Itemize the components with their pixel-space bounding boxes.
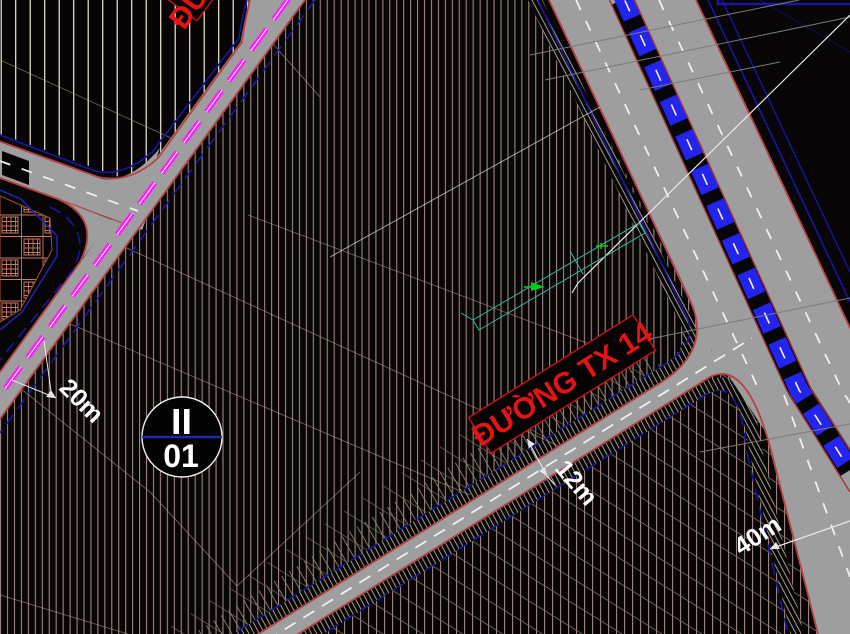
svg-text:01: 01	[163, 438, 199, 474]
